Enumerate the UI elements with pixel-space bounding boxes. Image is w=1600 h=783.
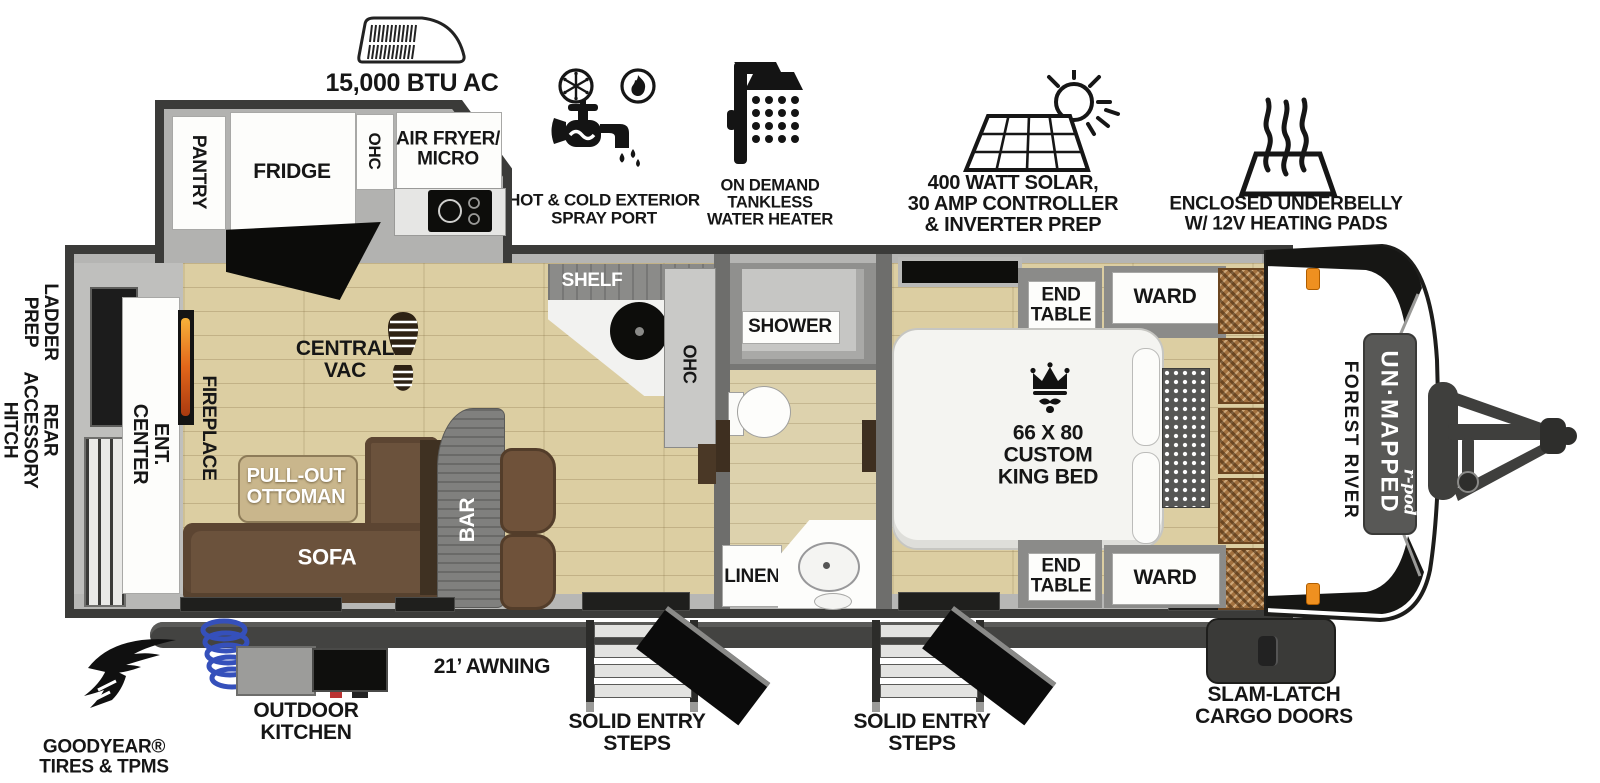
outdoor-kitchen-unit bbox=[236, 646, 316, 696]
underbelly-label: ENCLOSED UNDERBELLY W/ 12V HEATING PADS bbox=[1169, 194, 1402, 234]
ladder-prep-label: LADDER PREP bbox=[20, 283, 60, 360]
skylight bbox=[898, 257, 1022, 287]
shower-glass bbox=[730, 364, 876, 370]
end-table-bottom-label: END TABLE bbox=[1031, 556, 1091, 596]
step-tread bbox=[594, 684, 692, 698]
bar-stool bbox=[500, 534, 556, 610]
cargo-door-latch bbox=[1258, 636, 1278, 666]
floorplan-diagram: 15,000 BTU AC HOT & COLD EXTERIOR SPRAY … bbox=[0, 0, 1600, 783]
brand-model-label: UN·MAPPED bbox=[1376, 350, 1401, 513]
pull-out-ottoman-label: PULL-OUT OTTOMAN bbox=[247, 466, 346, 508]
window-slot bbox=[180, 597, 342, 612]
heating-pad-icon bbox=[1238, 84, 1338, 198]
bar-sink-drain bbox=[635, 327, 644, 336]
headboard-mesh bbox=[1162, 368, 1210, 508]
entry-steps-label: SOLID ENTRY STEPS bbox=[568, 711, 705, 755]
living-ohc-label: OHC bbox=[680, 344, 699, 383]
outdoor-kitchen-slab bbox=[312, 648, 388, 692]
pocket-door bbox=[862, 420, 876, 472]
fireplace-flame bbox=[181, 318, 190, 416]
ward-top-label: WARD bbox=[1134, 286, 1197, 308]
linen-label: LINEN bbox=[724, 567, 780, 587]
brand-submodel-label: r-pod bbox=[1401, 469, 1418, 516]
sofa-label: SOFA bbox=[298, 547, 357, 570]
rear-window bbox=[84, 437, 126, 607]
cooktop-burners-icon bbox=[428, 190, 492, 232]
marker-light bbox=[1306, 583, 1320, 605]
bar-stool bbox=[500, 448, 556, 534]
hitch-a-frame bbox=[1428, 382, 1577, 501]
spray-port-label: HOT & COLD EXTERIOR SPRAY PORT bbox=[508, 191, 700, 226]
bath-sink-drain bbox=[823, 562, 830, 569]
ac-label: 15,000 BTU AC bbox=[325, 70, 498, 96]
solar-panel-icon bbox=[958, 70, 1128, 178]
goodyear-wingfoot-icon bbox=[70, 630, 188, 718]
air-fryer-micro-label: AIR FRYER/ MICRO bbox=[396, 129, 500, 169]
step-tread bbox=[880, 684, 978, 698]
cargo-doors-label: SLAM-LATCH CARGO DOORS bbox=[1195, 684, 1353, 728]
king-crown-icon bbox=[1026, 362, 1074, 414]
marker-light bbox=[1306, 268, 1320, 290]
shelf-label: SHELF bbox=[562, 271, 623, 291]
goodyear-label: GOODYEAR® TIRES & TPMS bbox=[39, 737, 168, 777]
shower-head-icon bbox=[726, 60, 816, 170]
toilet-paper bbox=[814, 593, 852, 610]
fireplace-label: FIREPLACE bbox=[198, 376, 218, 481]
rear-accessory-hitch-label: REAR ACCESSORY HITCH bbox=[0, 372, 59, 489]
bath-bed-wall bbox=[876, 254, 892, 609]
bed-pillow bbox=[1132, 452, 1160, 544]
window-slot bbox=[395, 597, 455, 612]
step-rail bbox=[872, 620, 880, 702]
solar-label: 400 WATT SOLAR, 30 AMP CONTROLLER & INVE… bbox=[908, 173, 1118, 235]
bed-pillow bbox=[1132, 348, 1160, 446]
pocket-door bbox=[716, 420, 730, 472]
entry-steps-label: SOLID ENTRY STEPS bbox=[853, 711, 990, 755]
awning-label: 21’ AWNING bbox=[434, 656, 550, 678]
pantry-label: PANTRY bbox=[188, 135, 208, 209]
shower-label: SHOWER bbox=[748, 317, 832, 337]
outdoor-kitchen-knob bbox=[330, 692, 342, 698]
outdoor-kitchen-knob bbox=[352, 692, 368, 698]
brand-make-label: FOREST RIVER bbox=[1340, 361, 1360, 519]
rooftop-ac-icon bbox=[352, 12, 472, 68]
spray-port-faucet-icon bbox=[548, 100, 670, 168]
ward-bottom-label: WARD bbox=[1134, 567, 1197, 589]
toilet-bowl bbox=[737, 386, 791, 438]
step-rail bbox=[586, 620, 594, 702]
fridge-label: FRIDGE bbox=[253, 161, 331, 183]
front-cap bbox=[1262, 240, 1582, 632]
entry-door-threshold bbox=[582, 592, 690, 611]
king-bed-label: 66 X 80 CUSTOM KING BED bbox=[998, 422, 1098, 487]
boot-print-icon bbox=[383, 310, 423, 394]
entry-door-threshold bbox=[898, 592, 1000, 611]
end-table-top-label: END TABLE bbox=[1031, 285, 1091, 325]
water-heater-label: ON DEMAND TANKLESS WATER HEATER bbox=[707, 177, 833, 228]
bar-label: BAR bbox=[457, 498, 479, 543]
central-vac-label: CENTRAL VAC bbox=[296, 338, 394, 382]
wall-cabinet bbox=[698, 444, 716, 484]
ent-center-label: ENT. CENTER bbox=[129, 404, 171, 484]
kitchen-ohc-label: OHC bbox=[365, 133, 383, 170]
outdoor-kitchen-label: OUTDOOR KITCHEN bbox=[253, 700, 358, 744]
